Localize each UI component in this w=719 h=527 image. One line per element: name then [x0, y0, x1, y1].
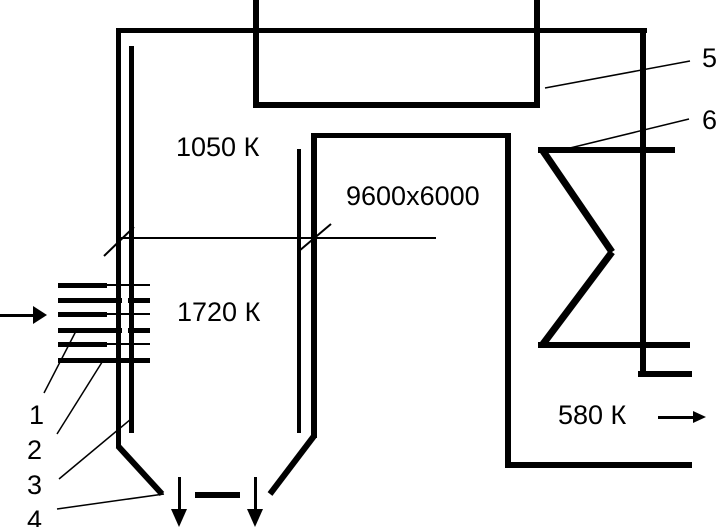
second-pass-left-wall-inner	[297, 149, 301, 433]
heat-exchanger-box	[256, 0, 537, 105]
hopper-right-slope	[270, 436, 314, 494]
second-pass-top-line	[311, 133, 511, 138]
ash-arrow-down-left-icon	[171, 477, 187, 527]
callout-label-2: 2	[27, 437, 42, 464]
top-gas-duct-line	[116, 28, 647, 33]
ash-arrow-down-right-icon	[247, 477, 263, 527]
callout-line-6	[570, 119, 689, 148]
second-pass-right-wall	[505, 133, 511, 464]
section-line	[116, 237, 436, 239]
label-temp-upper-pass: 1050 К	[176, 134, 259, 161]
callout-label-1: 1	[29, 402, 44, 429]
left-wall-inner	[129, 46, 134, 433]
zigzag-diagonal-lower	[543, 252, 612, 344]
callout-label-4: 4	[27, 507, 42, 527]
zigzag-top-bar	[538, 147, 675, 153]
zigzag-bottom-bar	[538, 342, 690, 348]
flue-bottom-line	[505, 462, 692, 468]
inlet-arrow-right-icon	[0, 306, 47, 324]
label-temp-furnace: 1720 К	[177, 299, 260, 326]
right-outer-wall	[640, 28, 646, 377]
furnace-scheme-diagram: 1050 К 9600x6000 1720 К 580 К 1 2 3 4 5 …	[0, 0, 719, 527]
callout-line-5	[545, 61, 690, 88]
callout-label-6: 6	[702, 107, 717, 134]
hopper-left-slope	[118, 446, 162, 494]
label-duct-dimension: 9600x6000	[346, 183, 480, 210]
label-temp-outlet: 580 К	[558, 402, 626, 429]
right-wall-foot	[638, 371, 692, 377]
callout-label-5: 5	[702, 45, 717, 72]
outlet-arrow-right-icon	[658, 411, 706, 423]
callout-line-4	[57, 494, 164, 509]
callout-label-3: 3	[27, 472, 42, 499]
scheme-linework	[0, 0, 719, 527]
burner-grate	[58, 283, 150, 363]
zigzag-diagonal-upper	[543, 151, 612, 252]
second-pass-left-wall-outer	[311, 133, 317, 438]
hopper-divider-bar	[195, 492, 240, 498]
callout-line-2	[57, 359, 104, 434]
